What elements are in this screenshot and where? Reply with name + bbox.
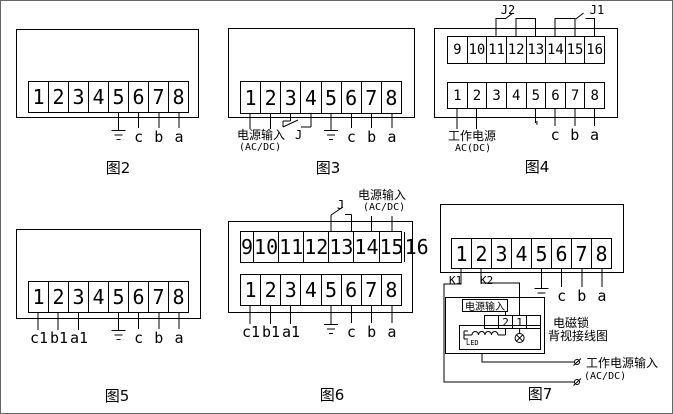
power-input-label: 电源输入 (358, 189, 406, 202)
relay-label-j2: J2 (501, 4, 515, 17)
pin-label-c1: c1 (30, 330, 48, 347)
terminal-3: 3 (486, 83, 506, 108)
connector-icon (574, 379, 582, 386)
terminal-8: 8 (591, 239, 611, 268)
pin-label-b1: b1 (262, 324, 280, 341)
pin-label-c: c (134, 129, 143, 146)
terminal-8: 8 (168, 82, 188, 112)
terminal-7: 7 (148, 82, 168, 112)
terminal-3: 3 (68, 282, 88, 312)
figure-caption: 图5 (105, 388, 130, 405)
terminal-1: 1 (241, 275, 260, 305)
terminal-strip: 1 2 3 4 5 6 7 8 (240, 81, 402, 114)
terminal-5: 5 (526, 83, 546, 108)
terminal-5: 5 (321, 82, 341, 113)
terminal-5: 5 (321, 275, 341, 305)
pin-label-c: c (551, 127, 560, 144)
pin-label-b: b (367, 129, 376, 146)
terminal-3: 3 (68, 82, 88, 112)
terminal-10: 10 (253, 232, 278, 262)
tick-mark: ' (533, 121, 541, 135)
terminal-12: 12 (303, 232, 328, 262)
terminal-12: 12 (506, 37, 526, 63)
terminal-7: 7 (565, 83, 585, 108)
pin-label-c: c (557, 288, 566, 305)
terminal-4: 4 (511, 239, 531, 268)
figure-caption: 图3 (316, 160, 341, 177)
wire-lock-power (482, 354, 574, 362)
terminal-16: 16 (584, 37, 604, 63)
terminal-1: 1 (241, 82, 260, 113)
terminal-strip-top: 9 10 11 12 13 14 15 16 (240, 231, 402, 263)
pin-label-a: a (387, 324, 396, 341)
connector-icon (574, 359, 582, 366)
terminal-4: 4 (300, 275, 320, 305)
pin-label-b: b (570, 127, 579, 144)
figure-caption: 图6 (320, 387, 345, 404)
terminal-7: 7 (148, 282, 168, 312)
terminal-4: 4 (88, 282, 108, 312)
wire-label-k2: K2 (480, 275, 493, 287)
figure-4: 9 10 11 12 13 14 15 16 1 2 3 4 5 6 7 8 J… (425, 1, 673, 201)
figure-caption: 图2 (106, 160, 131, 177)
terminal-6: 6 (551, 239, 571, 268)
wiring-diagram-page: 1 2 3 4 5 6 7 8 c b a 图2 (0, 0, 673, 414)
terminal-strip: 1 2 3 4 5 6 7 8 (28, 81, 189, 113)
terminal-8: 8 (381, 275, 401, 305)
terminal-4: 4 (88, 82, 108, 112)
relay-label-j: J (295, 129, 302, 142)
working-power-sub-label: AC(DC) (455, 143, 491, 154)
terminal-6: 6 (128, 82, 148, 112)
terminal-6: 6 (128, 282, 148, 312)
pin-label-c: c (134, 330, 143, 347)
figure-2: 1 2 3 4 5 6 7 8 c b a 图2 (1, 1, 225, 201)
power-input-label: 电源输入 (237, 129, 285, 142)
pin-label-a: a (590, 127, 599, 144)
terminal-4: 4 (506, 83, 526, 108)
terminal-1: 1 (452, 239, 471, 268)
terminal-11: 11 (486, 37, 506, 63)
ext-power-sub-label: (AC/DC) (584, 371, 626, 382)
ground-icon (535, 269, 549, 298)
terminal-8: 8 (584, 83, 604, 108)
terminal-strip-bottom: 1 2 3 4 5 6 7 8 (447, 82, 605, 109)
terminal-15: 15 (565, 37, 585, 63)
pin-label-a: a (387, 129, 396, 146)
terminal-15: 15 (379, 232, 404, 262)
power-input-sub-label: (AC/DC) (363, 202, 405, 213)
terminal-13: 13 (526, 37, 546, 63)
terminal-9: 9 (448, 37, 467, 63)
working-power-label: 工作电源 (448, 130, 496, 143)
terminal-6: 6 (341, 82, 361, 113)
terminal-2: 2 (471, 239, 491, 268)
terminal-strip: 1 2 3 4 5 6 7 8 (28, 281, 189, 313)
terminal-16: 16 (404, 232, 429, 262)
terminal-2: 2 (260, 82, 280, 113)
figure-caption: 图7 (528, 386, 553, 403)
figure-7: 1 2 3 4 5 6 7 8 K1 K2 c b a 电源输入 2 1 LED… (435, 191, 673, 414)
terminal-2: 2 (260, 275, 280, 305)
terminal-3: 3 (491, 239, 511, 268)
pin-label-a: a (597, 288, 606, 305)
terminal-2: 2 (467, 83, 487, 108)
terminal-10: 10 (467, 37, 487, 63)
figure-caption: 图4 (525, 159, 550, 176)
terminal-8: 8 (168, 282, 188, 312)
pin-label-c1: c1 (242, 324, 260, 341)
terminal-5: 5 (108, 82, 128, 112)
lock-power-input-label: 电源输入 (462, 299, 508, 312)
terminal-4: 4 (300, 82, 320, 113)
ext-power-label: 工作电源输入 (586, 357, 658, 370)
terminal-3: 3 (280, 82, 300, 113)
pin-label-a1: a1 (70, 330, 88, 347)
terminal-7: 7 (571, 239, 591, 268)
terminal-5: 5 (108, 282, 128, 312)
figure-3: 1 2 3 4 5 6 7 8 电源输入 (AC/DC) J c b a 图3 (225, 1, 425, 201)
pin-label-b: b (154, 330, 163, 347)
terminal-1: 1 (29, 282, 48, 312)
pin-label-c: c (347, 129, 356, 146)
terminal-9: 9 (241, 232, 253, 262)
terminal-2: 2 (48, 82, 68, 112)
terminal-7: 7 (361, 275, 381, 305)
relay-label-j1: J1 (590, 4, 604, 17)
terminal-2: 2 (48, 282, 68, 312)
pin-label-b1: b1 (50, 330, 68, 347)
terminal-14: 14 (545, 37, 565, 63)
terminal-3: 3 (280, 275, 300, 305)
terminal-13: 13 (328, 232, 353, 262)
pin-label-a: a (174, 129, 183, 146)
terminal-7: 7 (361, 82, 381, 113)
terminal-strip: 1 2 3 4 5 6 7 8 (451, 238, 612, 269)
terminal-strip-bottom: 1 2 3 4 5 6 7 8 (240, 274, 402, 306)
terminal-6: 6 (341, 275, 361, 305)
power-input-sub-label: (AC/DC) (239, 142, 281, 153)
pin-label-a: a (174, 330, 183, 347)
terminal-8: 8 (381, 82, 401, 113)
terminal-strip-top: 9 10 11 12 13 14 15 16 (447, 36, 605, 64)
pin-label-b: b (577, 288, 586, 305)
led-label: LED (466, 340, 479, 348)
terminal-1: 1 (448, 83, 467, 108)
pin-label-a1: a1 (282, 324, 300, 341)
relay-label-j: J (337, 199, 344, 212)
figure-5: 1 2 3 4 5 6 7 8 c1 b1 a1 c b a 图5 (1, 201, 225, 414)
wire-label-k1: K1 (449, 275, 462, 287)
pin-label-c: c (347, 324, 356, 341)
terminal-11: 11 (278, 232, 303, 262)
figure-6: 9 10 11 12 13 14 15 16 1 2 3 4 5 6 7 8 J… (225, 176, 435, 414)
pin-label-b: b (367, 324, 376, 341)
pin-label-b: b (154, 129, 163, 146)
terminal-6: 6 (545, 83, 565, 108)
terminal-1: 1 (29, 82, 48, 112)
terminal-14: 14 (353, 232, 378, 262)
terminal-5: 5 (531, 239, 551, 268)
lock-title-line2: 背视接线图 (548, 330, 608, 343)
